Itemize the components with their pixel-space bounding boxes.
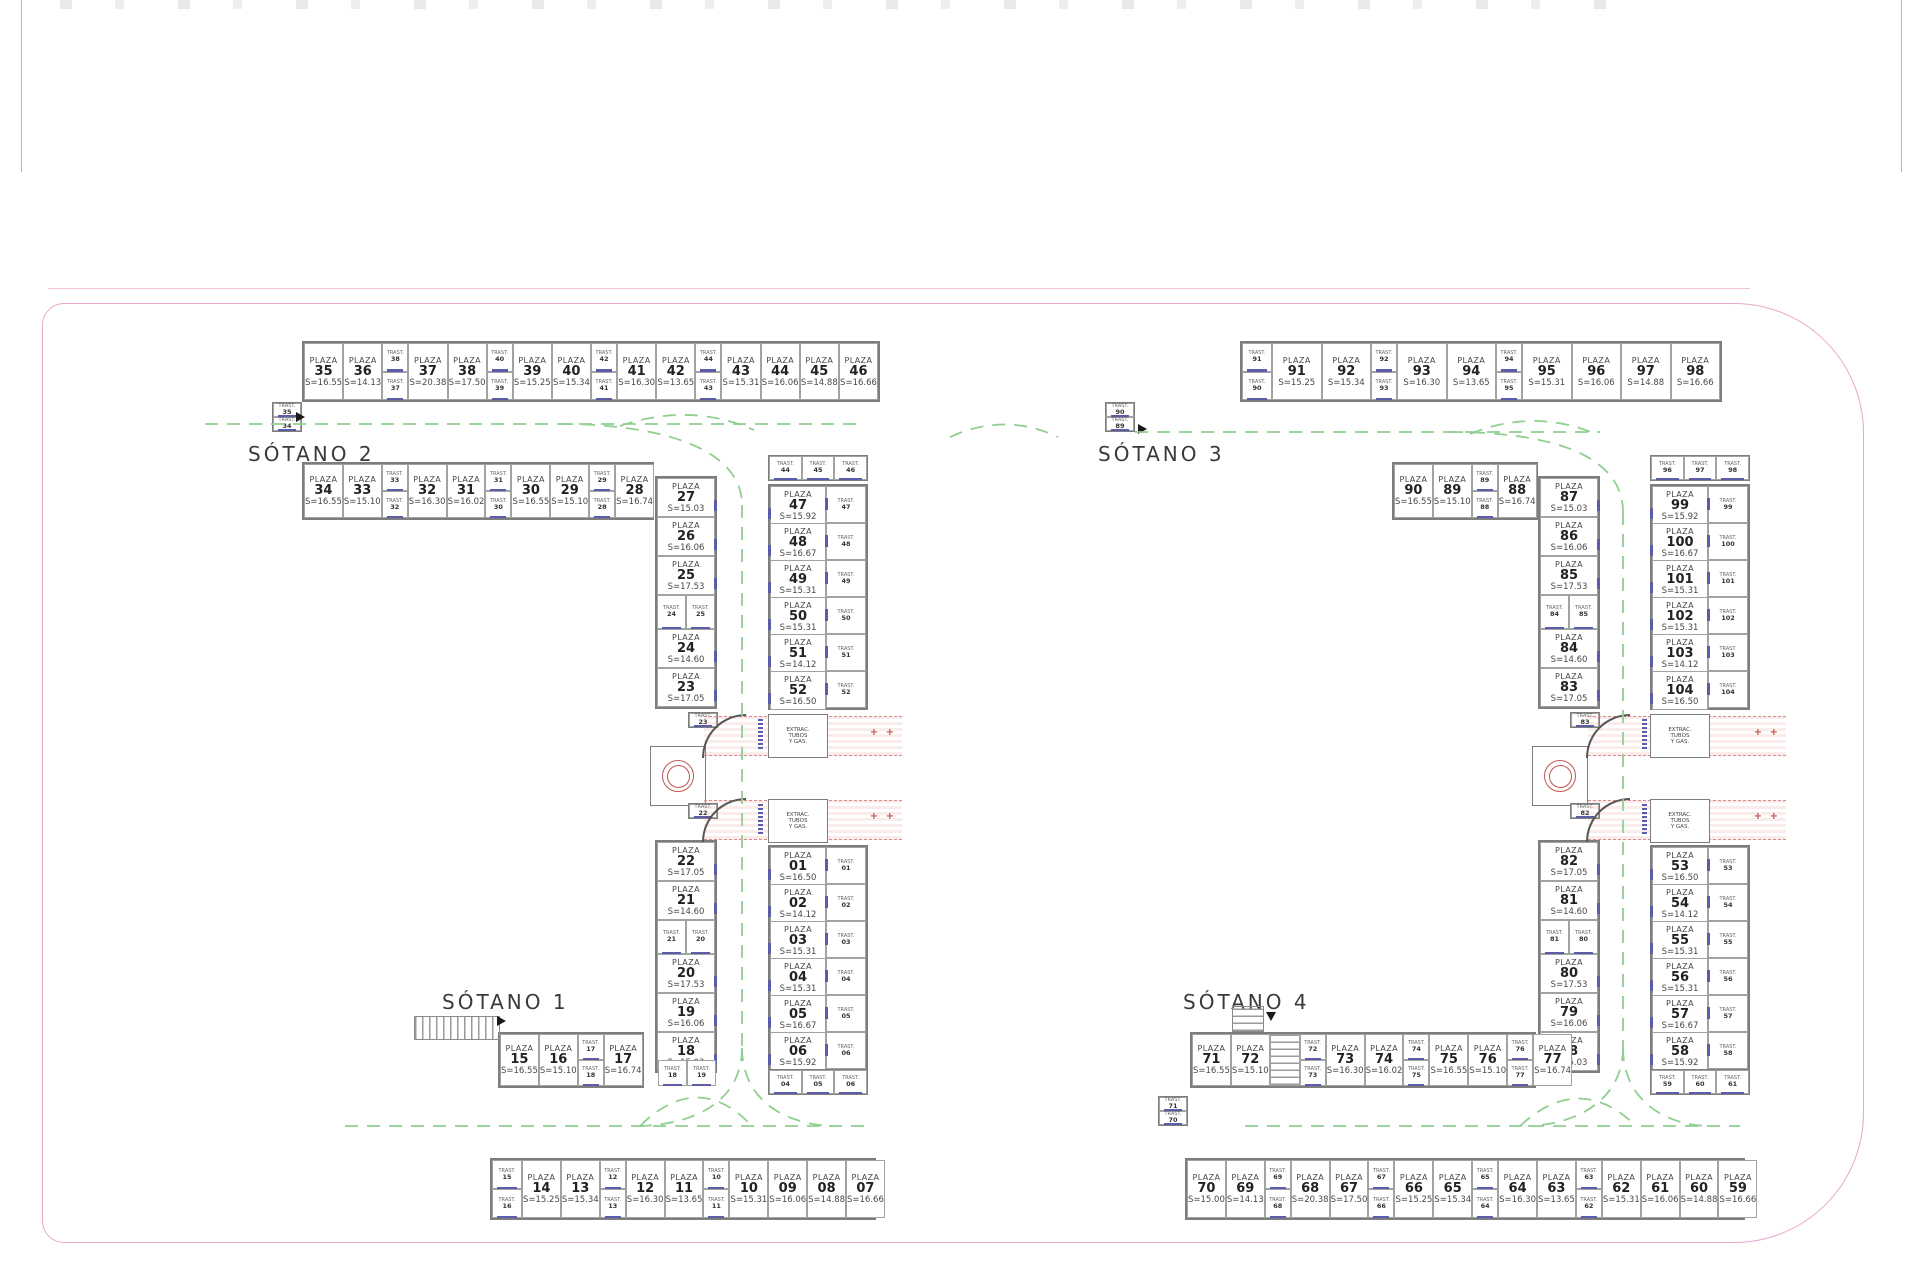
plaza-cell: PLAZA14S=15.25 (522, 1160, 561, 1218)
trast-box: TRAST.16 (492, 1189, 522, 1218)
plaza-cell: PLAZA94S=13.65 (1447, 343, 1497, 400)
plaza-cell: PLAZA04S=15.31 (770, 958, 826, 997)
plaza-cell: PLAZA68S=20.38 (1291, 1160, 1330, 1218)
plaza-cell: PLAZA08S=14.88 (807, 1160, 846, 1218)
trast-box: TRAST.104 (1708, 671, 1748, 708)
trast-box: TRAST.102 (1708, 597, 1748, 634)
plaza-cell: PLAZA49S=15.31 (770, 560, 826, 599)
trast-box: TRAST.90 (1242, 372, 1272, 401)
trast-box: TRAST.99 (1708, 486, 1748, 523)
trast-stack: TRAST.76TRAST.77 (1507, 1034, 1533, 1086)
plaza-cell: PLAZA65S=15.34 (1433, 1160, 1472, 1218)
plaza-cell: PLAZA11S=13.65 (665, 1160, 704, 1218)
parking-col-01-06: PLAZA01S=16.50TRAST.01PLAZA02S=14.12TRAS… (768, 845, 868, 1071)
plaza-cell: PLAZA47S=15.92 (770, 486, 826, 525)
trast-box: TRAST.49 (826, 560, 866, 597)
plaza-cell: PLAZA84S=14.60 (1540, 629, 1598, 668)
trast-pair: TRAST.18TRAST.19 (658, 1060, 716, 1086)
trast-box: TRAST.101 (1708, 560, 1748, 597)
label-sotano-3: SÓTANO 3 (1098, 442, 1225, 466)
label-sotano-1: SÓTANO 1 (442, 990, 569, 1014)
parking-row-71-77: PLAZA71S=16.55PLAZA72S=15.10TRAST.72TRAS… (1190, 1032, 1536, 1088)
trast-box: TRAST.59 (1651, 1070, 1684, 1094)
trast-box: TRAST.61 (1716, 1070, 1749, 1094)
plaza-cell: PLAZA23S=17.05 (657, 668, 715, 707)
trast-box: TRAST.18 (658, 1060, 687, 1086)
plaza-cell: PLAZA42S=13.65 (656, 343, 695, 400)
entry-arrow-icon (497, 1016, 506, 1026)
trast-stack: TRAST.89TRAST.88 (1472, 464, 1498, 518)
trast-box: TRAST.58 (1708, 1032, 1748, 1069)
plaza-cell: PLAZA39S=15.25 (513, 343, 552, 400)
trast-trio: TRAST.44TRAST.45TRAST.46 (768, 455, 868, 481)
plaza-cell: PLAZA67S=17.50 (1330, 1160, 1369, 1218)
stair-core (650, 746, 706, 806)
trast-box: TRAST.15 (492, 1160, 522, 1189)
parking-row-70-59: PLAZA70S=15.00PLAZA69S=14.13TRAST.69TRAS… (1185, 1158, 1745, 1220)
trast-box: TRAST.05 (826, 995, 866, 1032)
plaza-cell: PLAZA41S=16.30 (617, 343, 656, 400)
trast-box: TRAST.42 (591, 343, 617, 372)
plaza-cell: PLAZA36S=14.13 (343, 343, 382, 400)
trast-box: TRAST.10 (703, 1160, 729, 1189)
trast-box: TRAST.11 (703, 1189, 729, 1218)
trast-box: TRAST.52 (826, 671, 866, 708)
trast-stack: TRAST.12TRAST.13 (600, 1160, 626, 1218)
trast-box: TRAST.32 (382, 491, 408, 518)
plaza-cell: PLAZA51S=14.12 (770, 634, 826, 673)
plaza-cell: PLAZA76S=15.10 (1468, 1034, 1507, 1086)
plaza-cell: PLAZA81S=14.60 (1540, 881, 1598, 920)
plaza-cell: PLAZA70S=15.00 (1187, 1160, 1226, 1218)
plaza-cell: PLAZA91S=15.25 (1272, 343, 1322, 400)
trast-box: TRAST.29 (589, 464, 615, 491)
trast-box: TRAST.46 (834, 456, 867, 480)
plaza-cell: PLAZA46S=16.66 (839, 343, 878, 400)
parking-row-15-17: PLAZA15S=16.55PLAZA16S=15.10TRAST.17TRAS… (498, 1032, 644, 1088)
trast-stack: TRAST.72TRAST.73 (1300, 1034, 1326, 1086)
plaza-cell: PLAZA79S=16.06 (1540, 993, 1598, 1032)
plaza-cell: PLAZA25S=17.53 (657, 556, 715, 595)
plaza-cell: PLAZA72S=15.10 (1231, 1034, 1270, 1086)
trast-stack: TRAST.63TRAST.62 (1576, 1160, 1602, 1218)
parking-row-35-46: PLAZA35S=16.55PLAZA36S=14.13TRAST.38TRAS… (302, 341, 880, 402)
trast-box: TRAST.40 (487, 343, 513, 372)
trast-trio: TRAST.59TRAST.60TRAST.61 (1650, 1069, 1750, 1095)
trast-box: TRAST.06 (834, 1070, 867, 1094)
parking-row-91-98: TRAST.91TRAST.90PLAZA91S=15.25PLAZA92S=1… (1240, 341, 1722, 402)
vertical-text-mark (1642, 804, 1647, 836)
plaza-cell: PLAZA34S=16.55 (304, 464, 343, 518)
plaza-cell: PLAZA44S=16.06 (761, 343, 800, 400)
trast-box: TRAST.41 (591, 372, 617, 401)
plaza-cell: PLAZA95S=15.31 (1522, 343, 1572, 400)
plaza-cell: PLAZA32S=16.30 (408, 464, 447, 518)
plaza-cell: PLAZA77S=16.74 (1533, 1034, 1572, 1086)
plaza-cell: PLAZA26S=16.06 (657, 517, 715, 556)
plaza-cell: PLAZA89S=15.10 (1433, 464, 1472, 518)
plaza-cell: PLAZA13S=15.34 (561, 1160, 600, 1218)
trast-box: TRAST.95 (1496, 372, 1522, 401)
plaza-cell: PLAZA75S=16.55 (1429, 1034, 1468, 1086)
plaza-cell: PLAZA33S=15.10 (343, 464, 382, 518)
plaza-cell: PLAZA05S=16.67 (770, 995, 826, 1034)
plaza-cell: PLAZA97S=14.88 (1621, 343, 1671, 400)
trast-box: TRAST.94 (1496, 343, 1522, 372)
plaza-cell: PLAZA100S=16.67 (1652, 523, 1708, 562)
parking-col-27-23: PLAZA27S=15.03PLAZA26S=16.06PLAZA25S=17.… (655, 476, 717, 709)
trast-box: TRAST.33 (382, 464, 408, 491)
trast-stack: TRAST.10TRAST.11 (703, 1160, 729, 1218)
trast-box: TRAST.44 (695, 343, 721, 372)
plaza-cell: PLAZA96S=16.06 (1572, 343, 1622, 400)
trast-box: TRAST.68 (1265, 1189, 1291, 1218)
trast-box: TRAST.03 (826, 921, 866, 958)
trast-box: TRAST.44 (769, 456, 802, 480)
plaza-cell: PLAZA24S=14.60 (657, 629, 715, 668)
plaza-cell: PLAZA37S=20.38 (408, 343, 447, 400)
trast-box: TRAST.18 (578, 1060, 604, 1086)
trast-box: TRAST.19 (687, 1060, 716, 1086)
trast-box: TRAST.04 (826, 958, 866, 995)
trast-box: TRAST.89 (1472, 464, 1498, 491)
trast-box: TRAST.74 (1403, 1034, 1429, 1060)
extraction-room: EXTRAC.TUBOSY GAS. (1650, 799, 1710, 843)
plaza-cell: PLAZA21S=14.60 (657, 881, 715, 920)
plaza-cell: PLAZA60S=14.88 (1680, 1160, 1719, 1218)
plaza-cell: PLAZA35S=16.55 (304, 343, 343, 400)
trast-stack: TRAST.29TRAST.28 (589, 464, 615, 518)
parking-col-99-104: PLAZA99S=15.92TRAST.99PLAZA100S=16.67TRA… (1650, 484, 1750, 710)
extraction-room: EXTRAC.TUBOSY GAS. (1650, 714, 1710, 758)
trast-box: TRAST.55 (1708, 921, 1748, 958)
plaza-cell: PLAZA80S=17.53 (1540, 954, 1598, 993)
trast-box: TRAST.45 (802, 456, 835, 480)
trast-box: TRAST.30 (485, 491, 511, 518)
trast-pair: TRAST.21TRAST.20 (657, 920, 715, 954)
trast-stack: TRAST.33TRAST.32 (382, 464, 408, 518)
trast-box: TRAST.100 (1708, 523, 1748, 560)
trast-box: TRAST.17 (578, 1034, 604, 1060)
plaza-cell: PLAZA16S=15.10 (539, 1034, 578, 1086)
trast-box: TRAST.12 (600, 1160, 626, 1189)
plaza-cell: PLAZA52S=16.50 (770, 671, 826, 710)
plaza-cell: PLAZA20S=17.53 (657, 954, 715, 993)
vertical-text-mark (758, 719, 763, 751)
stairs-icon (414, 1016, 500, 1040)
trast-box: TRAST.53 (1708, 847, 1748, 884)
extraction-room: EXTRAC.TUBOSY GAS. (768, 714, 828, 758)
trast-box: TRAST.91 (1242, 343, 1272, 372)
trast-stack: TRAST.42TRAST.41 (591, 343, 617, 400)
trast-box: TRAST.28 (589, 491, 615, 518)
trast-box: TRAST.88 (1472, 491, 1498, 518)
plaza-cell: PLAZA103S=14.12 (1652, 634, 1708, 673)
trast-box: TRAST.50 (826, 597, 866, 634)
floor-plan-drawing: SÓTANO 2 SÓTANO 1 SÓTANO 3 SÓTANO 4 PLAZ… (0, 0, 1920, 1280)
plaza-cell: PLAZA02S=14.12 (770, 884, 826, 923)
plaza-cell: PLAZA59S=16.66 (1718, 1160, 1757, 1218)
trast-stack: TRAST.38TRAST.37 (382, 343, 408, 400)
trast-box: TRAST.13 (600, 1189, 626, 1218)
plaza-cell: PLAZA102S=15.31 (1652, 597, 1708, 636)
plaza-cell: PLAZA88S=16.74 (1498, 464, 1537, 518)
plaza-cell: PLAZA10S=15.31 (729, 1160, 768, 1218)
plaza-cell: PLAZA56S=15.31 (1652, 958, 1708, 997)
plaza-cell: PLAZA90S=16.55 (1394, 464, 1433, 518)
trast-box: TRAST.06 (826, 1032, 866, 1069)
trast-box: TRAST.01 (826, 847, 866, 884)
trast-box: TRAST.92 (1371, 343, 1397, 372)
trast-box: TRAST.31 (485, 464, 511, 491)
trast-stack: TRAST.44TRAST.43 (695, 343, 721, 400)
stairs-icon (1232, 1006, 1264, 1032)
trast-box: TRAST.77 (1507, 1060, 1533, 1086)
trast-box: TRAST.73 (1300, 1060, 1326, 1086)
entry-arrow-icon (1266, 1012, 1276, 1021)
trast-box: TRAST.67 (1368, 1160, 1394, 1189)
trast-box: TRAST.57 (1708, 995, 1748, 1032)
plaza-cell: PLAZA28S=16.74 (615, 464, 654, 518)
plaza-cell: PLAZA104S=16.50 (1652, 671, 1708, 710)
parking-col-87-83: PLAZA87S=15.03PLAZA86S=16.06PLAZA85S=17.… (1538, 476, 1600, 709)
trast-box: TRAST.84 (1540, 595, 1569, 629)
stair-core (1532, 746, 1588, 806)
trast-box: TRAST.39 (487, 372, 513, 401)
parking-col-22-18: PLAZA22S=17.05PLAZA21S=14.60TRAST.21TRAS… (655, 840, 717, 1073)
turbine-circle-icon (662, 760, 694, 792)
stairs-icon (1270, 1034, 1300, 1086)
plaza-cell: PLAZA03S=15.31 (770, 921, 826, 960)
plaza-cell: PLAZA31S=16.02 (447, 464, 486, 518)
plaza-cell: PLAZA71S=16.55 (1192, 1034, 1231, 1086)
trast-box: TRAST.47 (826, 486, 866, 523)
plaza-cell: PLAZA83S=17.05 (1540, 668, 1598, 707)
plaza-cell: PLAZA92S=15.34 (1322, 343, 1372, 400)
trast-trio: TRAST.96TRAST.97TRAST.98 (1650, 455, 1750, 481)
trast-stack: TRAST.94TRAST.95 (1496, 343, 1522, 400)
plaza-cell: PLAZA29S=15.10 (550, 464, 589, 518)
plaza-cell: PLAZA64S=16.30 (1498, 1160, 1537, 1218)
trast-box: TRAST.69 (1265, 1160, 1291, 1189)
plaza-cell: PLAZA27S=15.03 (657, 478, 715, 517)
trast-box: TRAST.76 (1507, 1034, 1533, 1060)
sheet-edge-left (21, 0, 22, 172)
turbine-circle-icon (1544, 760, 1576, 792)
vertical-text-mark (1642, 719, 1647, 751)
extraction-room: EXTRAC.TUBOSY GAS. (768, 799, 828, 843)
trast-box: TRAST.37 (382, 372, 408, 401)
trast-box: TRAST.38 (382, 343, 408, 372)
trast-stack: TRAST.69TRAST.68 (1265, 1160, 1291, 1218)
plaza-cell: PLAZA85S=17.53 (1540, 556, 1598, 595)
entry-arrow-icon (1138, 424, 1147, 434)
trast-box: TRAST.71 (1159, 1097, 1187, 1111)
plaza-cell: PLAZA22S=17.05 (657, 842, 715, 881)
plaza-cell: PLAZA17S=16.74 (604, 1034, 643, 1086)
trast-pair: TRAST.24TRAST.25 (657, 595, 715, 629)
cropped-top-marks (60, 0, 1620, 9)
trast-box: TRAST.65 (1472, 1160, 1498, 1189)
plaza-cell: PLAZA09S=16.06 (768, 1160, 807, 1218)
plaza-cell: PLAZA07S=16.66 (846, 1160, 885, 1218)
plaza-cell: PLAZA98S=16.66 (1671, 343, 1721, 400)
trast-pair: TRAST.81TRAST.80 (1540, 920, 1598, 954)
trast-box: TRAST.85 (1569, 595, 1598, 629)
trast-box: TRAST.48 (826, 523, 866, 560)
trast-stack: TRAST.31TRAST.30 (485, 464, 511, 518)
trast-stack: TRAST.40TRAST.39 (487, 343, 513, 400)
trast-box: TRAST.25 (686, 595, 715, 629)
trast-box: TRAST.80 (1569, 920, 1598, 954)
trast-box: TRAST.66 (1368, 1189, 1394, 1218)
trast-box: TRAST.98 (1716, 456, 1749, 480)
plaza-cell: PLAZA19S=16.06 (657, 993, 715, 1032)
trast-box: TRAST.93 (1371, 372, 1397, 401)
trast-box: TRAST.24 (657, 595, 686, 629)
trast-box: TRAST.04 (769, 1070, 802, 1094)
trast-box: TRAST.20 (686, 920, 715, 954)
plaza-cell: PLAZA12S=16.30 (626, 1160, 665, 1218)
plaza-cell: PLAZA99S=15.92 (1652, 486, 1708, 525)
plaza-cell: PLAZA87S=15.03 (1540, 478, 1598, 517)
plaza-cell: PLAZA73S=16.30 (1326, 1034, 1365, 1086)
trast-box: TRAST.81 (1540, 920, 1569, 954)
sheet-edge-right (1901, 0, 1902, 172)
plaza-cell: PLAZA43S=15.31 (721, 343, 760, 400)
trast-stack: TRAST.74TRAST.75 (1403, 1034, 1429, 1086)
trast-stack: TRAST.15TRAST.16 (492, 1160, 522, 1218)
parking-col-53-58: PLAZA53S=16.50TRAST.53PLAZA54S=14.12TRAS… (1650, 845, 1750, 1071)
trast-stack: TRAST.91TRAST.90 (1242, 343, 1272, 400)
trast-stack: TRAST.67TRAST.66 (1368, 1160, 1394, 1218)
plaza-cell: PLAZA54S=14.12 (1652, 884, 1708, 923)
plaza-cell: PLAZA63S=13.65 (1537, 1160, 1576, 1218)
plaza-cell: PLAZA50S=15.31 (770, 597, 826, 636)
trast-stack: TRAST.71TRAST.70 (1158, 1096, 1188, 1126)
parking-row-14-07: TRAST.15TRAST.16PLAZA14S=15.25PLAZA13S=1… (490, 1158, 876, 1220)
plaza-cell: PLAZA01S=16.50 (770, 847, 826, 886)
trast-box: TRAST.72 (1300, 1034, 1326, 1060)
plaza-cell: PLAZA62S=15.31 (1602, 1160, 1641, 1218)
trast-box: TRAST.43 (695, 372, 721, 401)
trast-box: TRAST.05 (802, 1070, 835, 1094)
trast-stack: TRAST.17TRAST.18 (578, 1034, 604, 1086)
plaza-cell: PLAZA74S=16.02 (1365, 1034, 1404, 1086)
trast-trio: TRAST.04TRAST.05TRAST.06 (768, 1069, 868, 1095)
parking-row-34-28: PLAZA34S=16.55PLAZA33S=15.10TRAST.33TRAS… (302, 462, 654, 520)
site-boundary-offset-line (48, 288, 1750, 289)
plaza-cell: PLAZA82S=17.05 (1540, 842, 1598, 881)
plaza-cell: PLAZA66S=15.25 (1394, 1160, 1433, 1218)
trast-box: TRAST.63 (1576, 1160, 1602, 1189)
plaza-cell: PLAZA53S=16.50 (1652, 847, 1708, 886)
plaza-cell: PLAZA61S=16.06 (1641, 1160, 1680, 1218)
trast-box: TRAST.56 (1708, 958, 1748, 995)
trast-box: TRAST.62 (1576, 1189, 1602, 1218)
vertical-text-mark (758, 804, 763, 836)
trast-stack: TRAST.92TRAST.93 (1371, 343, 1397, 400)
plaza-cell: PLAZA69S=14.13 (1226, 1160, 1265, 1218)
plaza-cell: PLAZA30S=16.55 (511, 464, 550, 518)
plaza-cell: PLAZA86S=16.06 (1540, 517, 1598, 556)
trast-box: TRAST.02 (826, 884, 866, 921)
trast-box: TRAST.51 (826, 634, 866, 671)
trast-box: TRAST.103 (1708, 634, 1748, 671)
trast-box: TRAST.21 (657, 920, 686, 954)
trast-box: TRAST.64 (1472, 1189, 1498, 1218)
trast-pair: TRAST.84TRAST.85 (1540, 595, 1598, 629)
plaza-cell: PLAZA38S=17.50 (448, 343, 487, 400)
plaza-cell: PLAZA48S=16.67 (770, 523, 826, 562)
parking-col-47-52: PLAZA47S=15.92TRAST.47PLAZA48S=16.67TRAS… (768, 484, 868, 710)
parking-row-90-88: PLAZA90S=16.55PLAZA89S=15.10TRAST.89TRAS… (1392, 462, 1538, 520)
entry-arrow-icon (296, 412, 305, 422)
trast-box: TRAST.70 (1159, 1111, 1187, 1125)
trast-box: TRAST.97 (1684, 456, 1717, 480)
plaza-cell: PLAZA101S=15.31 (1652, 560, 1708, 599)
plaza-cell: PLAZA93S=16.30 (1397, 343, 1447, 400)
trast-stack: TRAST.65TRAST.64 (1472, 1160, 1498, 1218)
trast-stack: TRAST.90TRAST.89 (1105, 402, 1135, 432)
plaza-cell: PLAZA06S=15.92 (770, 1032, 826, 1071)
trast-box: TRAST.54 (1708, 884, 1748, 921)
trast-box: TRAST.89 (1106, 417, 1134, 431)
plaza-cell: PLAZA40S=15.34 (552, 343, 591, 400)
plaza-cell: PLAZA15S=16.55 (500, 1034, 539, 1086)
trast-box: TRAST.96 (1651, 456, 1684, 480)
plaza-cell: PLAZA57S=16.67 (1652, 995, 1708, 1034)
plaza-cell: PLAZA45S=14.88 (800, 343, 839, 400)
plaza-cell: PLAZA55S=15.31 (1652, 921, 1708, 960)
trast-box: TRAST.75 (1403, 1060, 1429, 1086)
trast-box: TRAST.90 (1106, 403, 1134, 417)
plaza-cell: PLAZA58S=15.92 (1652, 1032, 1708, 1071)
trast-box: TRAST.60 (1684, 1070, 1717, 1094)
